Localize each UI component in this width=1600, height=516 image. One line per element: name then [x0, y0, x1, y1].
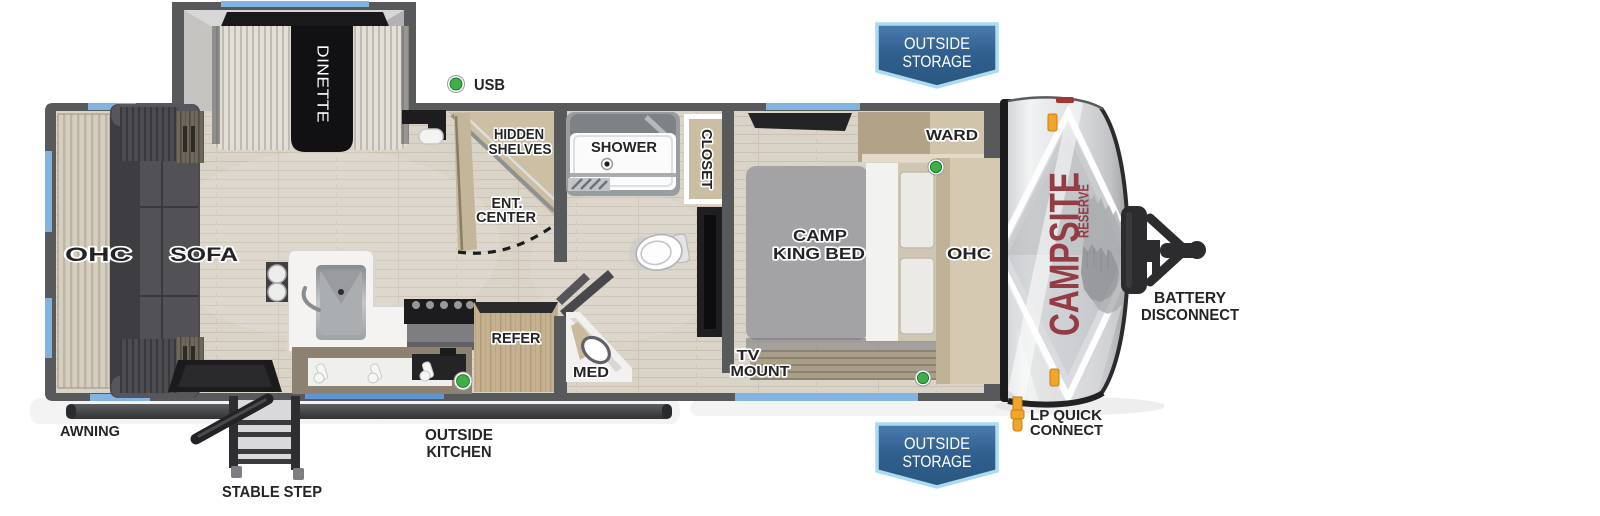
- svg-text:WARD: WARD: [926, 127, 978, 144]
- svg-text:DINETTE: DINETTE: [314, 45, 331, 123]
- svg-text:STORAGE: STORAGE: [903, 52, 972, 71]
- svg-text:REFER: REFER: [492, 330, 541, 347]
- svg-text:HIDDEN: HIDDEN: [494, 127, 544, 143]
- svg-text:CONNECT: CONNECT: [1030, 422, 1103, 439]
- svg-text:KING BED: KING BED: [773, 246, 865, 263]
- svg-text:OUTSIDE: OUTSIDE: [904, 434, 970, 453]
- svg-text:AWNING: AWNING: [60, 423, 120, 440]
- svg-text:MED: MED: [573, 364, 609, 381]
- svg-text:SHOWER: SHOWER: [591, 139, 657, 156]
- svg-text:CENTER: CENTER: [476, 210, 537, 226]
- svg-text:CLOSET: CLOSET: [698, 129, 714, 189]
- svg-text:USB: USB: [474, 77, 505, 94]
- svg-text:TV: TV: [737, 347, 760, 364]
- svg-text:SHELVES: SHELVES: [489, 142, 552, 158]
- svg-text:OUTSIDE: OUTSIDE: [425, 427, 493, 444]
- svg-text:STORAGE: STORAGE: [903, 452, 972, 471]
- svg-text:RESERVE: RESERVE: [1076, 184, 1093, 238]
- svg-text:SOFA: SOFA: [170, 245, 238, 266]
- svg-text:OHC: OHC: [947, 246, 992, 263]
- svg-text:STABLE STEP: STABLE STEP: [222, 484, 322, 501]
- svg-text:DISCONNECT: DISCONNECT: [1141, 307, 1239, 324]
- svg-text:MOUNT: MOUNT: [731, 363, 790, 380]
- svg-text:OHC: OHC: [65, 245, 131, 266]
- svg-text:CAMP: CAMP: [793, 228, 847, 245]
- svg-text:KITCHEN: KITCHEN: [427, 444, 492, 461]
- svg-text:OUTSIDE: OUTSIDE: [904, 34, 970, 53]
- svg-text:BATTERY: BATTERY: [1154, 290, 1226, 307]
